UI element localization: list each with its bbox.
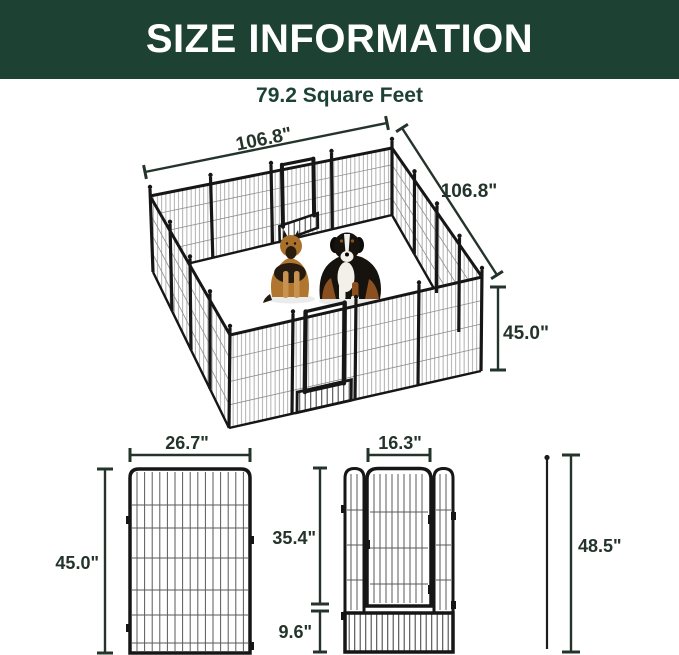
bottom-section-label: 9.6" xyxy=(278,622,312,642)
playpen-dimension-drawing: 106.8" 106.8" 45.0" 2 xyxy=(0,0,679,655)
bernese-mountain-dog xyxy=(320,233,382,302)
top-width-label: 106.8" xyxy=(234,124,294,156)
dimension-door-height: 35.4" 9.6" xyxy=(272,468,329,652)
door-width-label: 16.3" xyxy=(378,433,422,453)
door-panel-graphic xyxy=(341,469,456,653)
panel-height-label: 45.0" xyxy=(55,553,99,573)
ground-stake-diagram: 48.5" xyxy=(544,455,621,652)
panel-width-label: 26.7" xyxy=(165,433,209,453)
dimension-panel-height: 45.0" xyxy=(55,469,113,653)
dimension-wall-height: 45.0" xyxy=(490,287,549,370)
panel-graphic xyxy=(126,469,254,653)
dimension-door-width: 16.3" xyxy=(368,433,430,462)
stake-height-label: 48.5" xyxy=(578,536,622,556)
side-depth-label: 106.8" xyxy=(441,181,498,202)
playpen-isometric-view: 106.8" 106.8" 45.0" xyxy=(144,116,549,428)
wall-height-label: 45.0" xyxy=(503,323,549,344)
size-information-infographic: SIZE INFORMATION 79.2 Square Feet xyxy=(0,0,679,655)
stake-graphic xyxy=(544,455,549,649)
single-panel-diagram: 26.7" 45.0" xyxy=(55,433,254,653)
dimension-stake-height: 48.5" xyxy=(562,455,622,652)
dimension-panel-width: 26.7" xyxy=(130,433,250,462)
door-height-label: 35.4" xyxy=(272,528,316,548)
door-panel-diagram: 16.3" 35.4" 9.6" xyxy=(272,433,456,652)
